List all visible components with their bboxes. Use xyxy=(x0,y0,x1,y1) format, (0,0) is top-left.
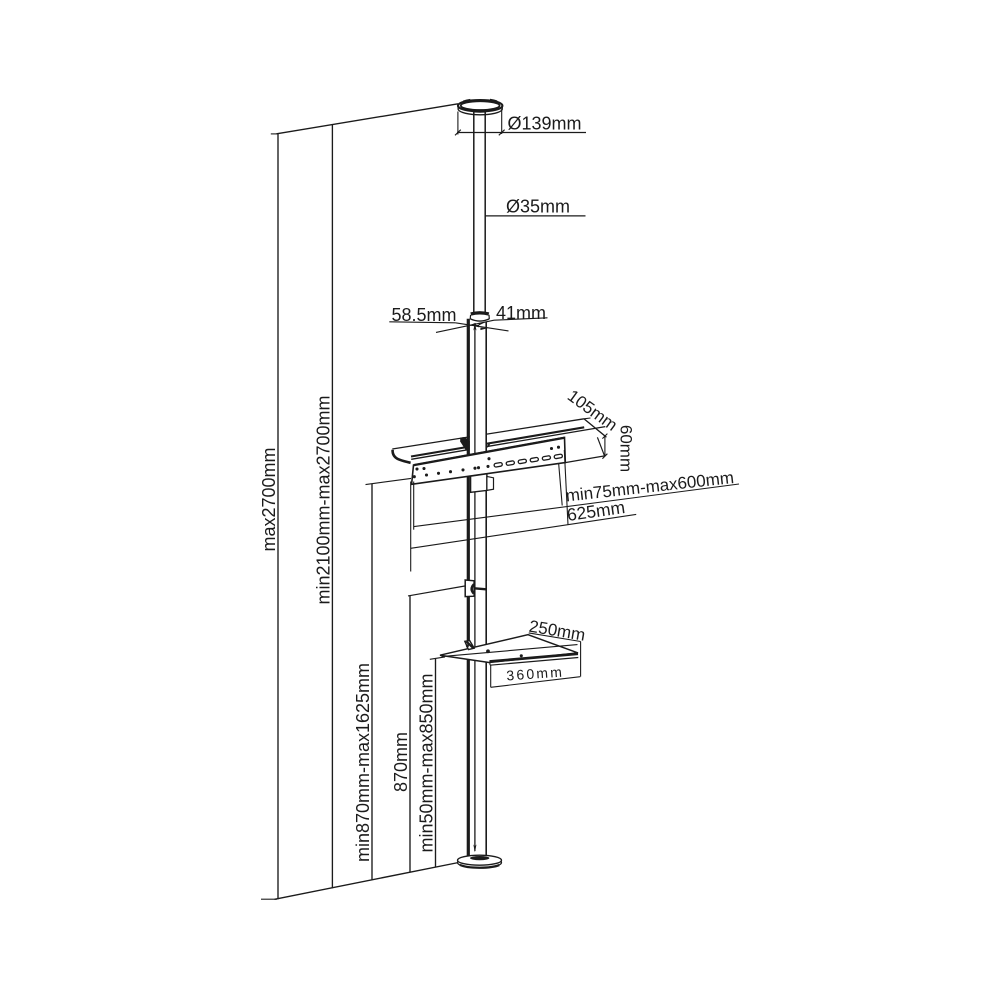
svg-text:Ø35mm: Ø35mm xyxy=(506,197,570,217)
svg-text:min50mm-max850mm: min50mm-max850mm xyxy=(417,673,437,852)
svg-text:min2100mm-max2700mm: min2100mm-max2700mm xyxy=(314,395,334,604)
svg-text:min870mm-max1625mm: min870mm-max1625mm xyxy=(353,663,373,862)
svg-text:max2700mm: max2700mm xyxy=(259,447,279,551)
svg-text:60mm: 60mm xyxy=(617,425,636,472)
svg-text:41mm: 41mm xyxy=(496,303,546,323)
svg-text:870mm: 870mm xyxy=(391,732,411,792)
svg-text:Ø139mm: Ø139mm xyxy=(508,114,582,134)
svg-text:58.5mm: 58.5mm xyxy=(392,305,457,325)
